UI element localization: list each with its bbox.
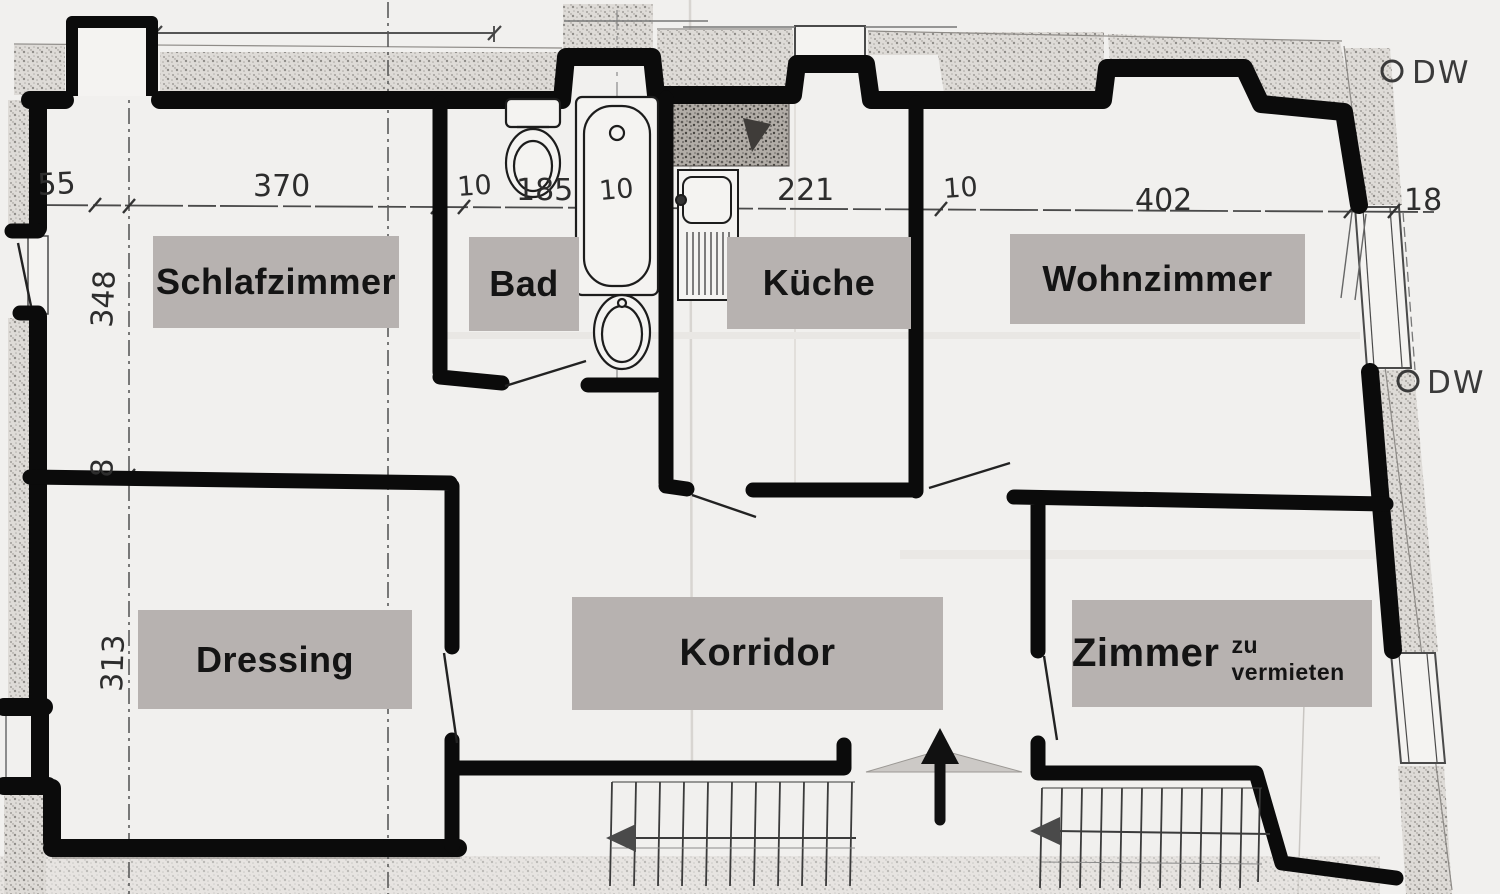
dim-348: 348 [85,269,123,328]
dim-10a: 10 [456,170,492,203]
dim-313: 313 [95,634,132,692]
dim-370: 370 [253,169,310,204]
floorplan-canvas: 55 370 10 185 10 221 10 402 18 348 8 313… [0,0,1500,894]
dim-10c: 10 [942,172,978,205]
room-name: Küche [763,262,876,304]
chimney-bump [72,22,152,96]
kitchen-counter [667,102,789,166]
room-label-dressing: Dressing [138,610,412,709]
room-label-bad: Bad [469,237,579,331]
room-name: Wohnzimmer [1042,258,1272,300]
room-label-korridor: Korridor [572,597,943,710]
room-label-schlafzimmer: Schlafzimmer [153,236,399,328]
dim-8: 8 [85,458,121,479]
room-label-zimmer: Zimmer zu vermieten [1072,600,1372,707]
floor-plan: 55 370 10 185 10 221 10 402 18 348 8 313… [0,0,1500,894]
downspout-label-mid: DW [1427,365,1486,401]
room-note: zu vermieten [1232,622,1373,686]
dim-221: 221 [777,173,834,208]
room-name: Zimmer [1072,631,1220,676]
dim-402: 402 [1135,183,1192,218]
dim-10b: 10 [598,173,635,207]
room-label-kueche: Küche [727,237,911,329]
dim-18: 18 [1404,183,1442,218]
dim-185: 185 [516,173,573,208]
room-name: Bad [489,263,559,305]
room-name: Korridor [680,632,836,675]
room-name: Schlafzimmer [156,261,396,303]
dim-55: 55 [37,166,77,203]
washbasin-fixture [594,295,650,369]
room-label-wohnzimmer: Wohnzimmer [1010,234,1305,324]
room-name: Dressing [196,639,354,681]
downspout-label-top: DW [1412,55,1471,91]
